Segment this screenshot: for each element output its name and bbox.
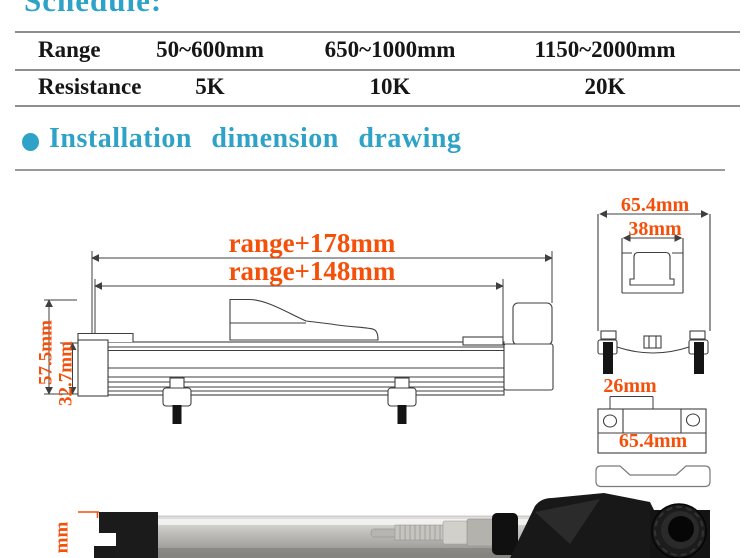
page: Schedule: Range 50~600mm 650~1000mm 1150… — [0, 0, 750, 558]
dim-label-26: 26mm — [577, 376, 683, 396]
bracket-hole — [604, 415, 617, 427]
dim-label-65-4-bottom: 65.4mm — [600, 431, 706, 451]
photo-dim-tick — [78, 512, 99, 518]
mount-bolt — [398, 405, 407, 424]
dim-label-38: 38mm — [602, 219, 708, 239]
end-cap-lower — [504, 344, 553, 390]
dim-label-65-4-top: 65.4mm — [602, 195, 708, 215]
end-cap-upper — [513, 303, 552, 345]
bracket-hole — [687, 414, 700, 426]
product-photo — [78, 493, 710, 558]
rail-body — [78, 300, 553, 397]
mount-bolt — [173, 405, 182, 424]
dim-label-57-5: 57.5mm — [37, 311, 56, 395]
rail-left-block — [78, 340, 108, 396]
end-bolt — [694, 342, 704, 374]
slider-carriage — [230, 300, 378, 341]
photo-cable-gland — [652, 504, 706, 558]
dim-label-32-7: 32.7mm — [57, 332, 76, 416]
end-bolt — [603, 342, 613, 374]
dim-label-range-148: range+148mm — [197, 258, 427, 285]
clip-profile — [596, 466, 710, 487]
dim-label-photo-clipped: mm — [53, 498, 72, 558]
rail-right-lip — [463, 337, 503, 345]
dim-label-range-178: range+178mm — [197, 230, 427, 257]
rail-slot-profile — [630, 253, 674, 286]
